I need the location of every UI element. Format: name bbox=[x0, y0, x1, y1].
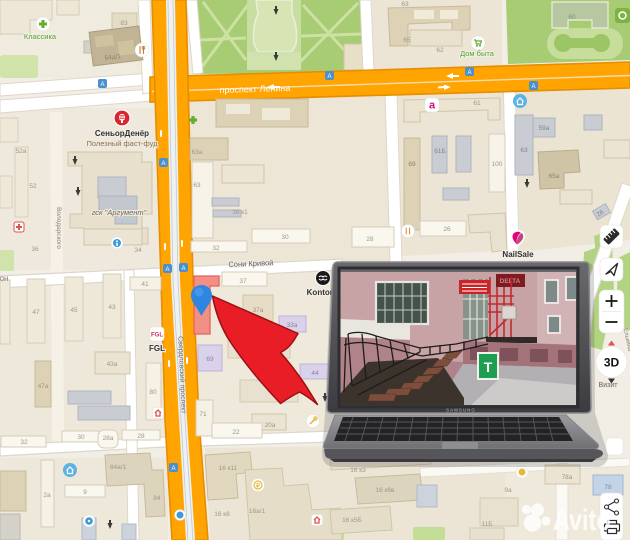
svg-text:37а: 37а bbox=[253, 307, 264, 314]
svg-text:T: T bbox=[484, 359, 493, 375]
svg-text:63: 63 bbox=[193, 182, 201, 189]
svg-text:9а: 9а bbox=[504, 487, 512, 494]
svg-text:Володарского: Володарского bbox=[55, 207, 62, 249]
svg-text:26: 26 bbox=[443, 226, 451, 233]
svg-text:А: А bbox=[467, 70, 471, 76]
svg-text:16 к8: 16 к8 bbox=[214, 511, 230, 518]
svg-text:16 к5Б: 16 к5Б bbox=[342, 517, 362, 524]
svg-text:84а/1: 84а/1 bbox=[110, 464, 127, 471]
svg-text:16 к6в: 16 к6в bbox=[376, 487, 395, 494]
svg-text:45: 45 bbox=[70, 307, 78, 314]
svg-text:61Б: 61Б bbox=[434, 148, 446, 155]
svg-text:34: 34 bbox=[134, 247, 142, 254]
svg-text:33а: 33а bbox=[287, 322, 298, 329]
svg-text:60: 60 bbox=[568, 14, 576, 21]
svg-text:43: 43 bbox=[108, 304, 116, 311]
svg-text:FGL: FGL bbox=[149, 344, 165, 353]
svg-text:36: 36 bbox=[31, 246, 39, 253]
svg-text:3D: 3D bbox=[604, 356, 620, 370]
svg-text:2а: 2а bbox=[43, 492, 51, 499]
svg-text:Avito: Avito bbox=[553, 503, 611, 536]
svg-text:62: 62 bbox=[436, 47, 444, 54]
svg-text:83: 83 bbox=[120, 20, 128, 27]
svg-text:11Б: 11Б bbox=[481, 521, 492, 528]
svg-text:52: 52 bbox=[29, 183, 37, 190]
svg-text:84: 84 bbox=[153, 495, 161, 502]
svg-text:FGL: FGL bbox=[151, 333, 163, 339]
svg-text:69: 69 bbox=[408, 161, 416, 168]
svg-text:28: 28 bbox=[366, 236, 374, 243]
svg-text:А: А bbox=[327, 74, 331, 80]
svg-text:47а: 47а bbox=[38, 383, 49, 390]
svg-text:28а: 28а bbox=[103, 435, 114, 442]
svg-text:52а: 52а bbox=[16, 148, 27, 155]
svg-text:65: 65 bbox=[403, 37, 411, 44]
svg-text:Дом быта: Дом быта bbox=[460, 49, 495, 58]
svg-text:80: 80 bbox=[149, 389, 157, 396]
svg-text:₽: ₽ bbox=[256, 482, 260, 489]
svg-text:43а: 43а bbox=[107, 361, 118, 368]
svg-text:16 к3: 16 к3 bbox=[350, 467, 366, 474]
svg-text:А: А bbox=[100, 82, 104, 88]
svg-text:78а: 78а bbox=[562, 474, 573, 481]
svg-text:16а/1: 16а/1 bbox=[249, 508, 266, 515]
svg-text:78: 78 bbox=[604, 484, 612, 491]
svg-text:9: 9 bbox=[83, 489, 87, 496]
svg-text:a: a bbox=[429, 100, 436, 112]
svg-text:63: 63 bbox=[520, 147, 528, 154]
svg-text:63: 63 bbox=[401, 1, 409, 8]
svg-text:гск "Аргумент": гск "Аргумент" bbox=[92, 208, 147, 217]
svg-text:47: 47 bbox=[32, 309, 40, 316]
svg-text:71: 71 bbox=[199, 411, 207, 418]
svg-text:DELTA: DELTA bbox=[500, 278, 521, 285]
svg-text:А: А bbox=[161, 161, 165, 167]
svg-text:SAMSUNG: SAMSUNG bbox=[446, 408, 476, 413]
svg-text:41: 41 bbox=[141, 281, 149, 288]
svg-text:63а: 63а bbox=[192, 149, 203, 156]
svg-text:А: А bbox=[181, 266, 185, 272]
svg-text:44: 44 bbox=[311, 370, 319, 377]
svg-text:Визит: Визит bbox=[599, 382, 619, 389]
svg-text:А: А bbox=[531, 84, 535, 90]
svg-text:он: он bbox=[0, 274, 8, 283]
svg-text:69: 69 bbox=[206, 356, 214, 363]
svg-text:30: 30 bbox=[281, 234, 289, 241]
svg-text:СеньорДенёр: СеньорДенёр bbox=[95, 129, 149, 138]
svg-text:100: 100 bbox=[492, 161, 503, 168]
svg-text:NailSale: NailSale bbox=[502, 250, 534, 259]
svg-text:59а: 59а bbox=[539, 125, 550, 132]
svg-text:65а: 65а bbox=[549, 173, 560, 180]
svg-text:22: 22 bbox=[232, 429, 240, 436]
svg-text:Полезный фаст-фуд: Полезный фаст-фуд bbox=[86, 139, 158, 148]
svg-text:А: А bbox=[165, 267, 169, 273]
svg-text:Классика: Классика bbox=[24, 32, 57, 41]
svg-text:А: А bbox=[171, 466, 175, 472]
svg-text:61: 61 bbox=[473, 100, 481, 107]
svg-text:38 к1: 38 к1 bbox=[232, 209, 248, 216]
svg-text:32: 32 bbox=[20, 439, 28, 446]
svg-text:20а: 20а bbox=[265, 422, 276, 429]
svg-text:16 к11: 16 к11 bbox=[219, 465, 238, 472]
svg-text:28: 28 bbox=[137, 433, 145, 440]
svg-text:32: 32 bbox=[212, 245, 220, 252]
svg-text:30: 30 bbox=[77, 434, 85, 441]
svg-text:37: 37 bbox=[239, 278, 247, 285]
